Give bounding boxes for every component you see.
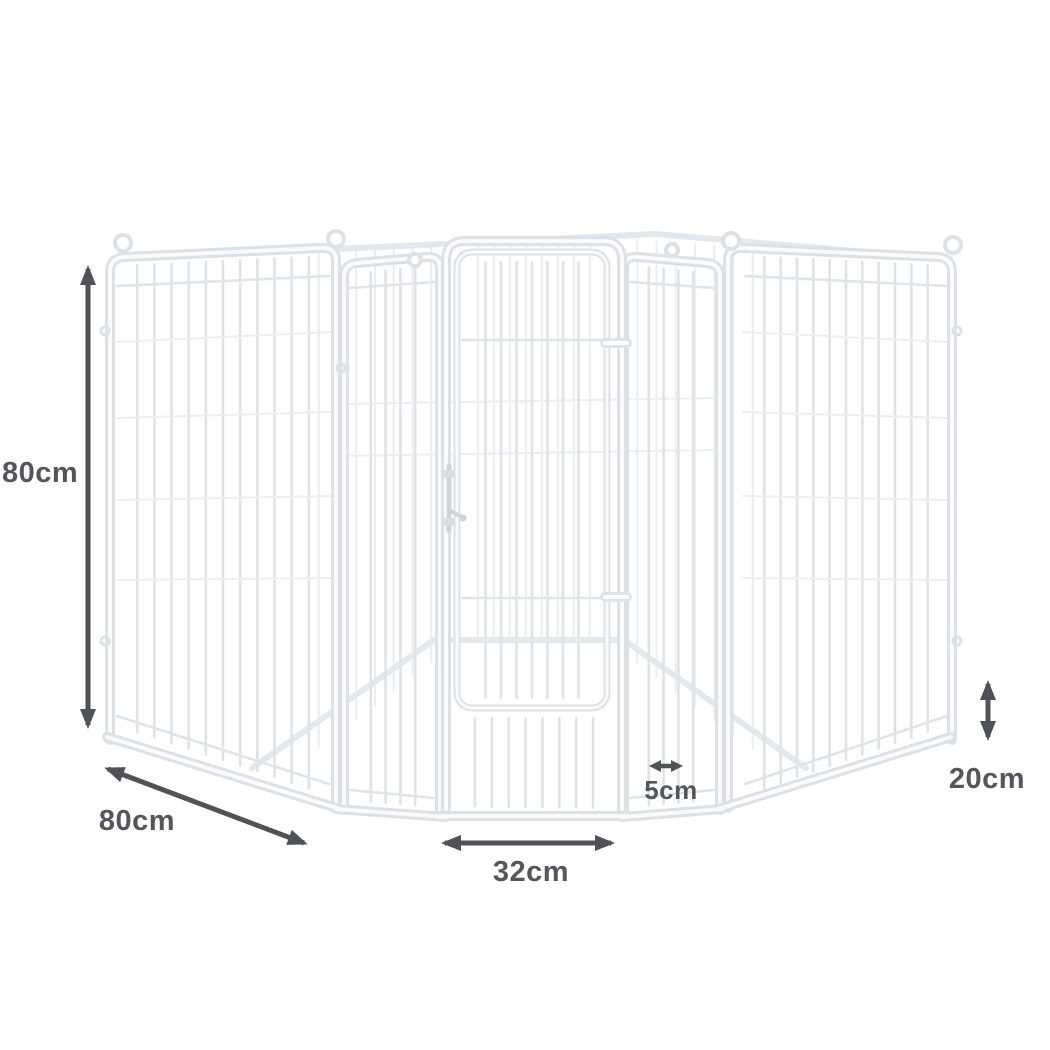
panel-width-label: 80cm: [76, 805, 198, 838]
bottom-rails: [107, 737, 951, 817]
product-dimension-image: 80cm 80cm 32cm 5cm 20cm: [0, 0, 1050, 1050]
panel-front-left: [344, 257, 440, 813]
gate-bars: [486, 262, 579, 698]
panel-height-label: 80cm: [2, 457, 78, 490]
bar-spacing-label: 5cm: [610, 775, 732, 806]
gate-width-label: 32cm: [470, 856, 592, 889]
bottom-section-height-label: 20cm: [926, 763, 1048, 796]
panel-right: [728, 248, 952, 808]
playpen-illustration: [0, 0, 1050, 1050]
playpen: [101, 231, 961, 817]
panel-door: [443, 241, 627, 815]
panel-front-right: [624, 257, 720, 813]
panel-left: [110, 248, 336, 808]
door-bottom-bars: [475, 718, 593, 808]
